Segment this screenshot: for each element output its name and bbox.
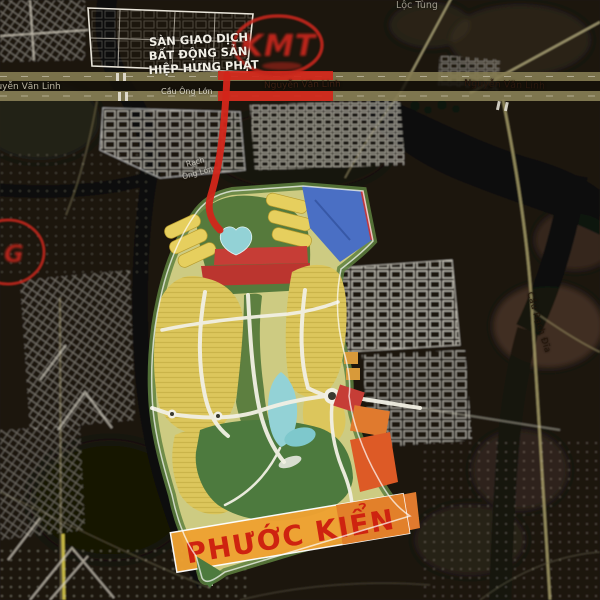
area-label-top-right: Lộc Tùng bbox=[396, 0, 438, 11]
road-label-nvl-center: Nguyễn Văn Linh bbox=[264, 79, 341, 91]
road-label-nvl-left: Nguyễn Văn Linh bbox=[0, 81, 61, 92]
left-logo-text: G bbox=[4, 240, 24, 268]
map-canvas: PHƯỚC KIỂN KMT G SÀN GIAO DỊCH BẤT ĐỘNG … bbox=[0, 0, 600, 600]
bridge-label-ong-lon: Cầu Ông Lớn bbox=[161, 85, 213, 96]
satellite-map: PHƯỚC KIỂN KMT G SÀN GIAO DỊCH BẤT ĐỘNG … bbox=[0, 0, 600, 600]
